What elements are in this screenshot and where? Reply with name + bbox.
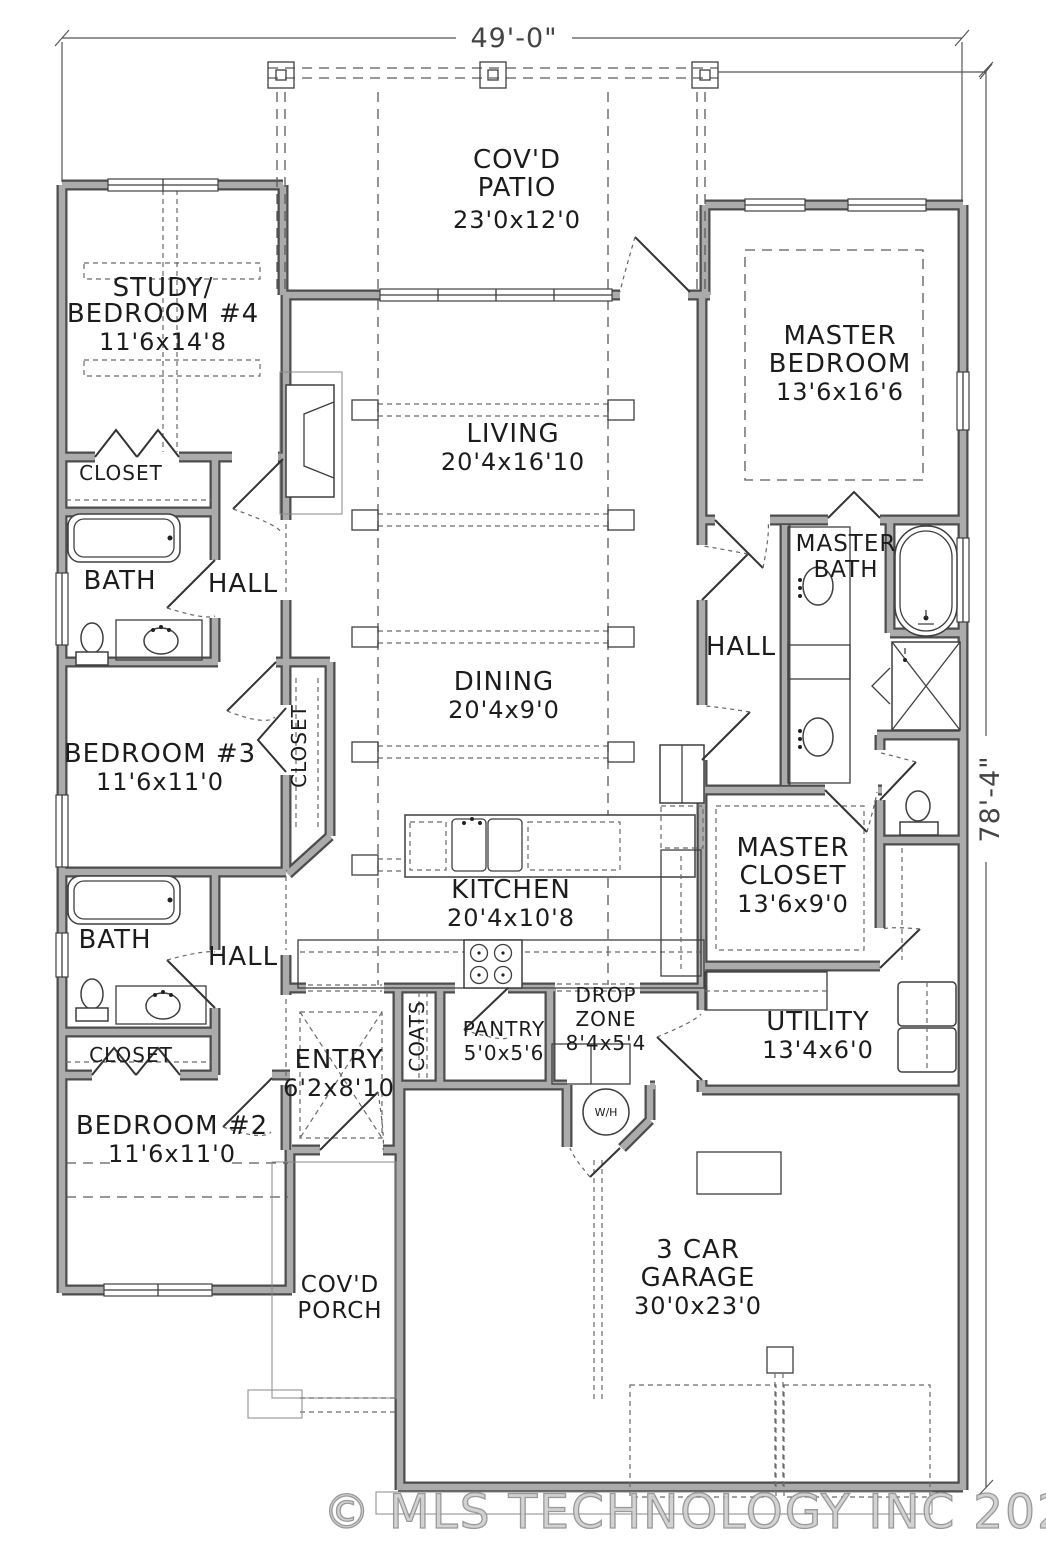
toilet-room-door bbox=[880, 753, 916, 800]
garage-storage bbox=[697, 1152, 781, 1194]
sink-vanity bbox=[116, 986, 206, 1024]
refrigerator bbox=[660, 745, 704, 803]
garage-door-bay bbox=[630, 1385, 776, 1497]
bath-window bbox=[56, 573, 68, 645]
range bbox=[464, 940, 522, 988]
master-window bbox=[848, 199, 926, 211]
patio-post bbox=[692, 62, 718, 88]
garage-details bbox=[376, 1152, 932, 1514]
porch-label: PORCH bbox=[297, 1298, 382, 1324]
dining-label: DINING bbox=[454, 667, 554, 697]
bathtub bbox=[68, 876, 180, 924]
master-side-window bbox=[957, 372, 969, 430]
porch-label: COV'D bbox=[301, 1272, 380, 1298]
pantry-label: PANTRY bbox=[463, 1017, 545, 1041]
master-bath-label: BATH bbox=[813, 557, 878, 583]
patio-label: COV'D bbox=[473, 145, 561, 175]
tub-window bbox=[957, 538, 969, 622]
dining-size: 20'4x9'0 bbox=[448, 696, 560, 724]
sink-vanity bbox=[116, 620, 202, 660]
study-door bbox=[233, 459, 283, 532]
entry-size: 6'2x8'10 bbox=[283, 1074, 395, 1102]
bedroom2-label: BEDROOM #2 bbox=[76, 1111, 268, 1141]
toilet bbox=[76, 623, 108, 665]
master-closet-label: MASTER bbox=[736, 833, 849, 863]
utility-label: UTILITY bbox=[766, 1007, 870, 1037]
pantry-size: 5'0x5'6 bbox=[464, 1041, 545, 1065]
height-dimension-label: 78'-4" bbox=[975, 755, 1006, 842]
living-rear-windows bbox=[380, 289, 612, 301]
utility-door bbox=[657, 1014, 702, 1080]
watermark: © MLS TECHNOLOGY INC 2026 bbox=[323, 1485, 1046, 1540]
master-closet-size: 13'6x9'0 bbox=[737, 890, 849, 918]
bedroom3-door bbox=[227, 662, 276, 720]
master-bath-label: MASTER bbox=[796, 531, 897, 557]
suite-hall-door bbox=[702, 546, 748, 600]
hall-label: HALL bbox=[706, 632, 776, 662]
bath-label: BATH bbox=[78, 925, 151, 955]
water-heater-label: W/H bbox=[595, 1106, 618, 1119]
drop-zone-label: DROP bbox=[575, 983, 636, 1007]
drop-zone-size: 8'4x5'4 bbox=[566, 1031, 647, 1055]
study-size: 11'6x14'8 bbox=[99, 328, 227, 356]
patio-label: PATIO bbox=[478, 173, 557, 203]
bath-label: BATH bbox=[83, 566, 156, 596]
hall-label: HALL bbox=[208, 942, 278, 972]
master-bedroom-size: 13'6x16'6 bbox=[776, 378, 904, 406]
master-tub bbox=[895, 526, 957, 636]
kitchen-label: KITCHEN bbox=[451, 875, 571, 905]
bedroom2-window bbox=[104, 1284, 212, 1296]
bedroom3-closet-door bbox=[258, 708, 286, 772]
garage-size: 30'0x23'0 bbox=[634, 1292, 762, 1320]
living-label: LIVING bbox=[466, 419, 559, 449]
closet-label: CLOSET bbox=[287, 704, 311, 788]
master-bedroom-label: BEDROOM bbox=[769, 349, 912, 379]
study-label: BEDROOM #4 bbox=[67, 299, 259, 329]
toilet bbox=[900, 791, 938, 835]
kitchen-size: 20'4x10'8 bbox=[447, 904, 575, 932]
garage-entry-door bbox=[570, 1148, 620, 1177]
garage-post bbox=[767, 1347, 793, 1373]
living-size: 20'4x16'10 bbox=[441, 448, 585, 476]
toilet bbox=[76, 979, 108, 1021]
master-bedroom-label: MASTER bbox=[783, 321, 896, 351]
width-dimension-label: 49'-0" bbox=[470, 23, 557, 54]
utility-size: 13'4x6'0 bbox=[762, 1036, 874, 1064]
drop-zone-label: ZONE bbox=[575, 1007, 636, 1031]
bedroom3-size: 11'6x11'0 bbox=[96, 768, 224, 796]
bedroom2-size: 11'6x11'0 bbox=[108, 1140, 236, 1168]
porch-step bbox=[248, 1390, 302, 1418]
bathtub bbox=[68, 514, 180, 562]
fireplace bbox=[280, 372, 342, 514]
master-bath-doors bbox=[828, 492, 880, 518]
patio-size: 23'0x12'0 bbox=[453, 206, 581, 234]
closet-passage-door bbox=[880, 928, 920, 968]
bedroom3-label: BEDROOM #3 bbox=[64, 739, 256, 769]
floor-plan-drawing: 49'-0" 78'-4" COV'D PATIO 23'0x12'0 STUD… bbox=[0, 0, 1046, 1558]
kitchen-island bbox=[405, 815, 695, 877]
master-closet-label: CLOSET bbox=[740, 861, 847, 891]
hall-label: HALL bbox=[208, 569, 278, 599]
patio-post bbox=[268, 62, 294, 88]
entry-label: ENTRY bbox=[294, 1045, 383, 1075]
master-window bbox=[745, 199, 805, 211]
garage-label: GARAGE bbox=[641, 1263, 756, 1293]
study-window bbox=[108, 179, 218, 191]
closet-label: CLOSET bbox=[89, 1043, 173, 1067]
closet-label: CLOSET bbox=[79, 461, 163, 485]
patio-door bbox=[620, 237, 690, 292]
utility-counter bbox=[705, 972, 827, 1010]
coats-label: COATS bbox=[405, 1000, 429, 1071]
master-closet-door bbox=[825, 790, 877, 832]
shower bbox=[872, 642, 960, 730]
hall-door bbox=[702, 706, 750, 760]
floor-plan-page: 49'-0" 78'-4" COV'D PATIO 23'0x12'0 STUD… bbox=[0, 0, 1046, 1558]
patio-post bbox=[480, 62, 506, 88]
bedroom3-window bbox=[56, 795, 68, 867]
study-closet-bifold bbox=[95, 430, 179, 457]
bath-window bbox=[56, 933, 68, 977]
garage-label: 3 CAR bbox=[656, 1235, 740, 1265]
garage-door-bay bbox=[784, 1385, 930, 1497]
